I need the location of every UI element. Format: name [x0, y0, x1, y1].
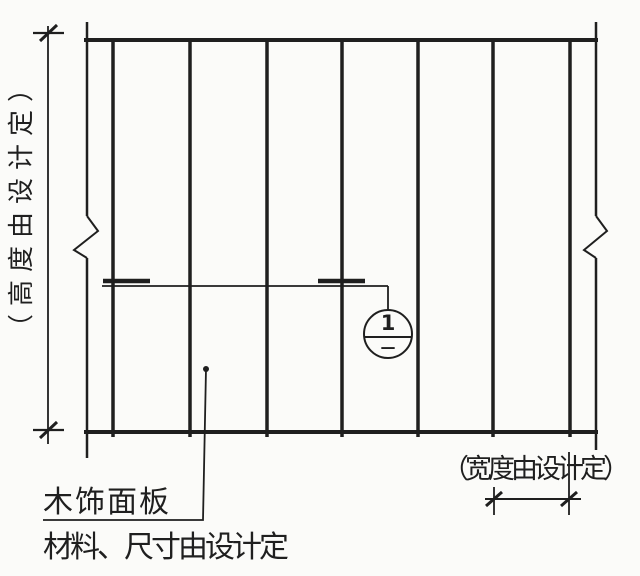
left-break-symbol [74, 216, 98, 258]
detail-callout-number: 1 [365, 311, 411, 338]
panel-name-label: 木饰面板 [43, 486, 171, 519]
panel-joint-lines [113, 40, 570, 437]
detail-callout-sheet-dash: — [365, 338, 411, 359]
height-note-label: （高度由设计定） [8, 60, 36, 348]
right-break-symbol [584, 216, 607, 258]
width-note-label: （宽度由设计定） [442, 455, 626, 485]
panel-material-note-label: 材料、尺寸由设计定 [43, 531, 286, 564]
drawing-canvas: （高度由设计定） 木饰面板 材料、尺寸由设计定 （宽度由设计定） 1 — [0, 0, 640, 576]
detail-callout-bubble: 1 — [363, 309, 413, 359]
